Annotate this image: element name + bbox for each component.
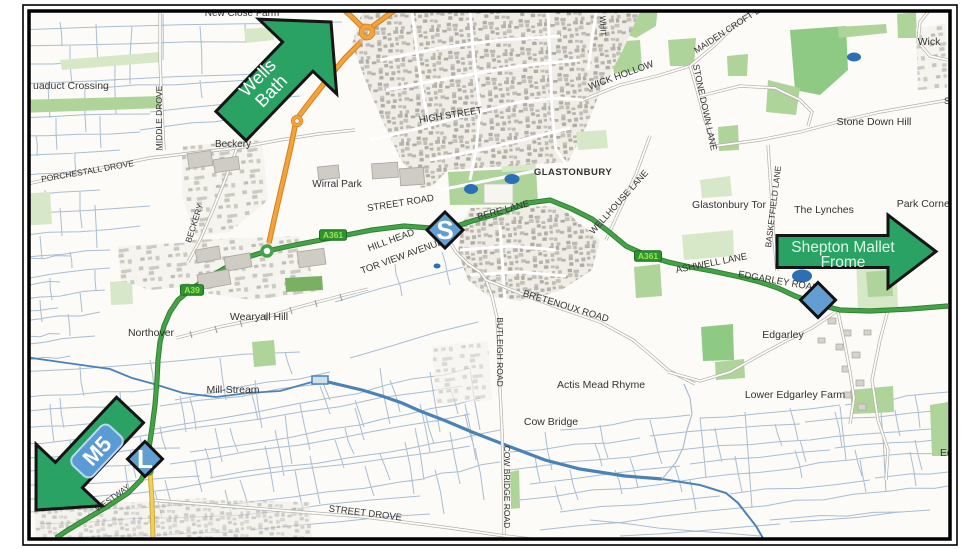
svg-text:A361: A361 [323, 230, 344, 240]
svg-text:MIDDLE DROVE: MIDDLE DROVE [154, 85, 164, 150]
svg-text:Glastonbury Tor: Glastonbury Tor [692, 199, 766, 211]
svg-text:Wearyall Hill: Wearyall Hill [230, 311, 288, 323]
svg-text:Northover: Northover [128, 327, 175, 339]
svg-text:WHIT: WHIT [598, 16, 608, 37]
svg-text:Edgarley: Edgarley [762, 329, 804, 341]
svg-text:Cow Bridge: Cow Bridge [524, 416, 578, 428]
svg-text:COW BRIDGE ROAD: COW BRIDGE ROAD [502, 446, 512, 529]
svg-text:S: S [436, 215, 453, 245]
svg-text:A361: A361 [638, 251, 659, 261]
svg-text:Frome: Frome [821, 254, 866, 271]
svg-text:Stone Down Hill: Stone Down Hill [837, 116, 912, 128]
svg-text:Wick: Wick [918, 36, 941, 48]
svg-text:A39: A39 [184, 285, 200, 295]
svg-text:The Lynches: The Lynches [794, 204, 854, 216]
svg-text:L: L [137, 444, 153, 474]
svg-text:uaduct Crossing: uaduct Crossing [33, 80, 109, 92]
svg-text:Actis Mead Rhyme: Actis Mead Rhyme [557, 379, 645, 391]
svg-text:Park Corner: Park Corner [897, 198, 954, 210]
svg-text:Mill-Stream: Mill-Stream [206, 384, 259, 396]
svg-text:Lower Edgarley Farm: Lower Edgarley Farm [745, 389, 846, 401]
svg-text:Wirral Park: Wirral Park [312, 179, 362, 190]
svg-text:GLASTONBURY: GLASTONBURY [534, 167, 613, 178]
svg-text:BUTLEIGH ROAD: BUTLEIGH ROAD [495, 317, 505, 386]
